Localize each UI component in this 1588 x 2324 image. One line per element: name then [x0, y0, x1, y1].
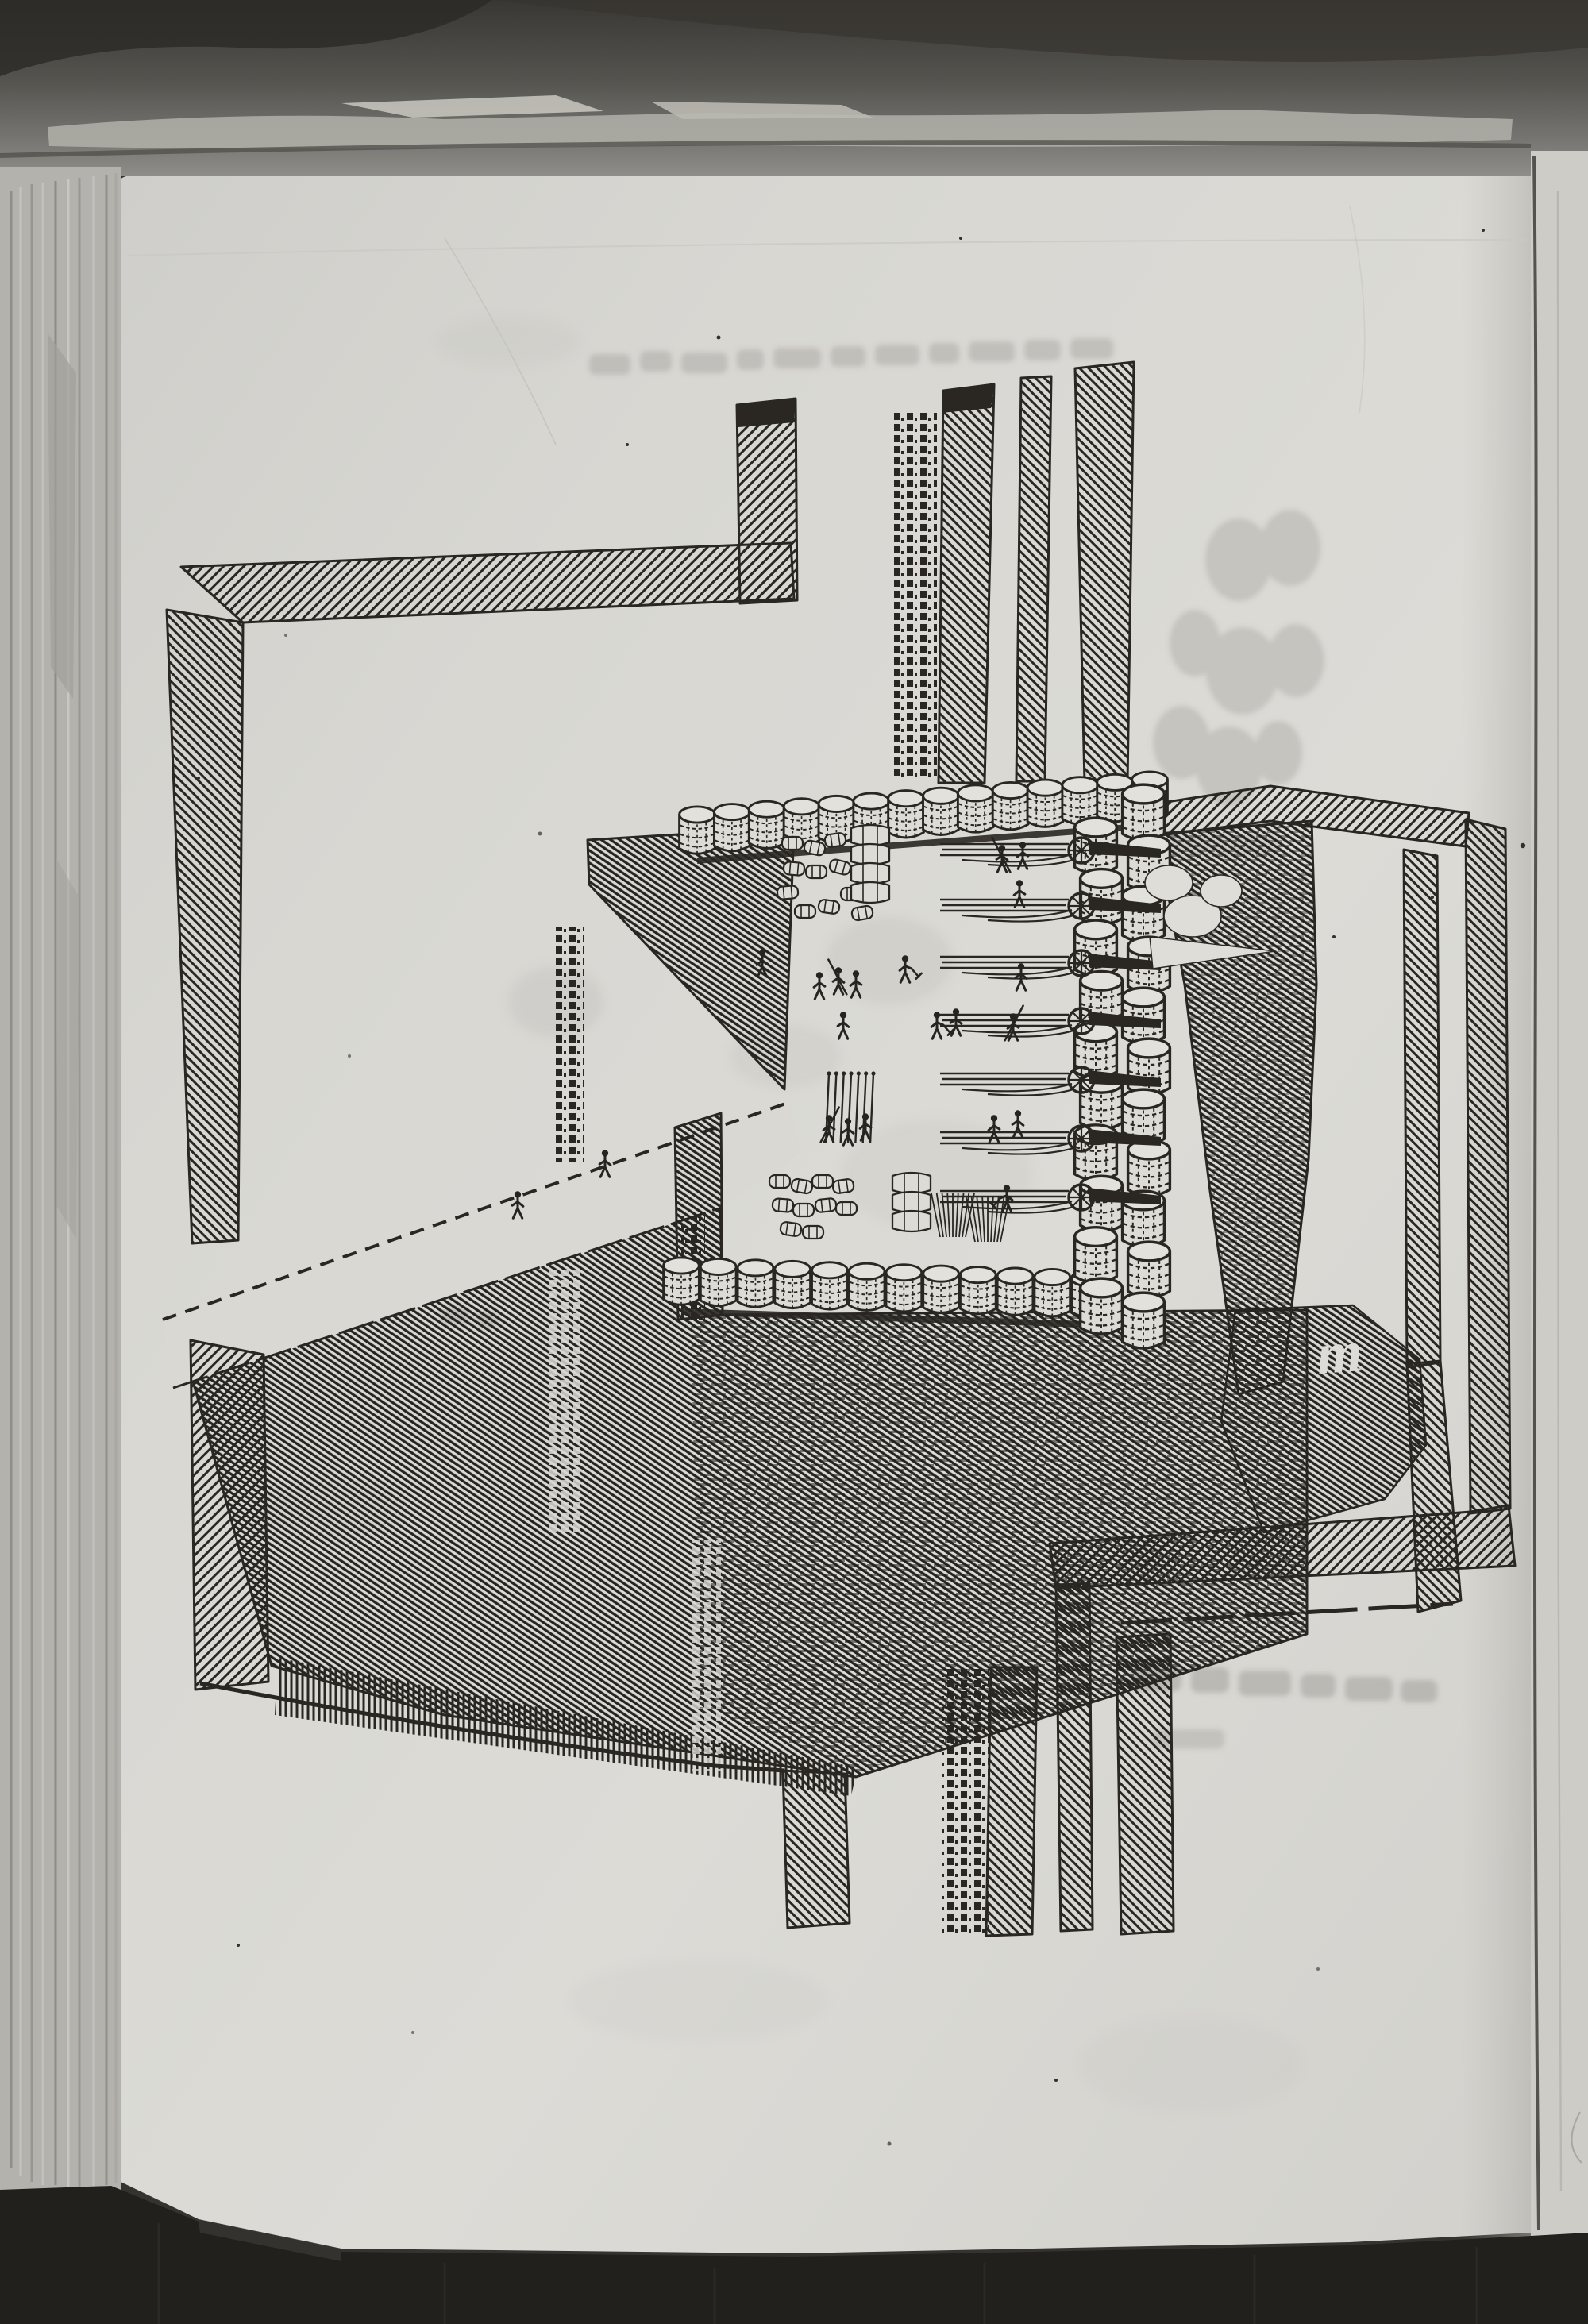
- powder-keg: [818, 899, 840, 914]
- barrel-stack: [892, 1192, 931, 1212]
- gabion: [700, 1258, 736, 1308]
- powder-keg: [769, 1175, 790, 1188]
- gabion: [1075, 1228, 1117, 1286]
- gabion: [1035, 1269, 1070, 1319]
- powder-keg: [803, 1226, 823, 1239]
- gabion: [812, 1262, 848, 1312]
- gabion: [775, 1261, 811, 1311]
- powder-keg: [777, 885, 798, 900]
- powder-keg: [793, 1204, 814, 1216]
- gabion: [1123, 1293, 1165, 1351]
- powder-keg: [806, 865, 827, 878]
- book-top-edge: [0, 0, 1588, 176]
- powder-keg: [795, 905, 815, 918]
- fore-edge: [1531, 151, 1588, 2239]
- barrel-stack: [851, 825, 889, 846]
- key-label-m: m: [1314, 1319, 1364, 1387]
- gabion: [923, 788, 959, 838]
- gabion: [960, 1267, 996, 1317]
- powder-keg: [824, 832, 846, 847]
- powder-keg: [791, 1178, 813, 1194]
- barrel-stack: [892, 1211, 931, 1231]
- gabion: [923, 1266, 959, 1316]
- gabion: [849, 1263, 885, 1313]
- powder-keg: [836, 1202, 857, 1215]
- gabion: [958, 785, 993, 835]
- covered-way-dotted-top: [894, 413, 937, 778]
- gabion: [992, 782, 1028, 832]
- powder-keg: [782, 837, 803, 850]
- barrel-stack: [892, 1173, 931, 1193]
- gabion: [886, 1265, 922, 1315]
- smoke-puff: [1145, 865, 1193, 900]
- powder-keg: [815, 1198, 837, 1213]
- gabion: [1081, 1278, 1123, 1337]
- gabion: [714, 804, 750, 854]
- gabion: [680, 807, 715, 857]
- powder-keg: [772, 1198, 793, 1212]
- covered-way-dotted-bottom: [942, 1666, 989, 1933]
- powder-keg: [780, 1221, 802, 1236]
- bottom-trench-bars: [942, 1666, 1037, 1936]
- smoke-puff: [1201, 875, 1242, 907]
- gabion: [1027, 780, 1063, 830]
- gabion: [738, 1260, 773, 1310]
- barrel-stack: [851, 882, 889, 903]
- gabion: [997, 1268, 1033, 1318]
- powder-keg: [832, 1178, 854, 1193]
- gabion: [888, 791, 924, 841]
- page-stack-edge: [0, 167, 121, 2191]
- barrel-stack: [851, 844, 889, 865]
- powder-keg: [851, 905, 873, 921]
- barrel-stack: [851, 863, 889, 884]
- powder-keg: [783, 861, 804, 876]
- powder-keg: [812, 1175, 833, 1188]
- gabion: [664, 1258, 700, 1308]
- book-scan-photo: m: [0, 0, 1588, 2324]
- gabion: [749, 801, 784, 851]
